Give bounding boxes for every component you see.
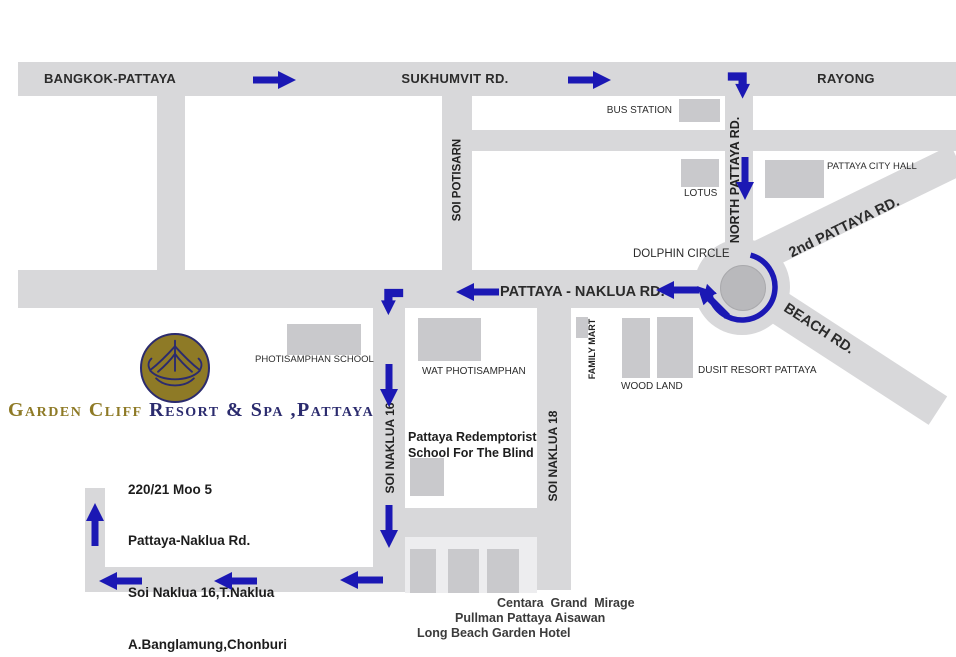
label-wat-photisamphan: WAT PHOTISAMPHAN — [422, 366, 526, 377]
label-pullman: Pullman Pattaya Aisawan — [455, 611, 605, 625]
resort-name-gold: Garden Cliff — [8, 399, 149, 421]
sukhumvit-arrow-east-icon — [568, 71, 612, 89]
blind-school-line1: Pattaya Redemptorist — [408, 430, 537, 444]
blind-school-line2: School For The Blind — [408, 446, 534, 460]
wat-photisamphan-building — [418, 318, 481, 361]
label-wood-land: WOOD LAND — [621, 381, 683, 392]
label-bangkok-pattaya: BANGKOK-PATTAYA — [30, 71, 190, 86]
label-bus-station: BUS STATION — [592, 105, 672, 116]
label-soi-naklua-18: SOI NAKLUA 18 — [546, 406, 560, 506]
lotus-building — [681, 159, 719, 187]
address-line: A.Banglamung,Chonburi — [128, 636, 287, 653]
road-bus-station-band — [472, 130, 956, 151]
north-pattaya-turn-arrow-icon — [727, 70, 750, 101]
boat-icon — [142, 335, 208, 401]
route-left-arrow-1-icon — [98, 572, 142, 590]
resort-address: 220/21 Moo 5 Pattaya-Naklua Rd. Soi Nakl… — [128, 446, 287, 657]
label-soi-potisarn: SOI POTISARN — [452, 133, 464, 228]
wood-land-building-2 — [657, 317, 693, 378]
soi16-down-arrow-2-icon — [380, 505, 398, 549]
address-line: Pattaya-Naklua Rd. — [128, 532, 287, 549]
label-blind-school: Pattaya RedemptoristSchool For The Blind — [408, 429, 537, 461]
garden-cliff-logo — [140, 333, 210, 403]
road-connector — [373, 508, 571, 537]
resort-name-navy: Resort & Spa ,Pattaya — [149, 399, 374, 421]
route-left-arrow-3-icon — [339, 571, 383, 589]
road-left-vertical — [157, 96, 185, 270]
label-soi-naklua-16: SOI NAKLUA 16 — [383, 398, 397, 498]
wood-land-building-1 — [622, 318, 650, 378]
label-centara: Centara Grand Mirage — [497, 596, 635, 610]
route-up-arrow-icon — [86, 502, 104, 546]
address-line: Soi Naklua 16,T.Naklua — [128, 584, 287, 601]
bus-station-building — [679, 99, 720, 122]
sukhumvit-arrow-west-icon — [253, 71, 297, 89]
north-pattaya-down-arrow-icon — [736, 157, 754, 201]
hotel-building-3 — [487, 549, 519, 593]
address-line: 220/21 Moo 5 — [128, 481, 287, 498]
blind-school-building — [410, 458, 444, 496]
resort-name: Garden Cliff Resort & Spa ,Pattaya — [8, 399, 340, 422]
label-lotus: LOTUS — [684, 188, 717, 199]
label-photisamphan-school: PHOTISAMPHAN SCHOOL — [255, 354, 374, 365]
label-family-mart: FAMILY MART — [587, 316, 597, 382]
naklua-left-arrow-mid-icon — [455, 283, 499, 301]
label-city-hall: PATTAYA CITY HALL — [827, 161, 917, 172]
hotel-building-2 — [448, 549, 479, 593]
hotel-building-1 — [410, 549, 436, 593]
soi16-down-arrow-1-icon — [380, 364, 398, 408]
label-sukhumvit: SUKHUMVIT RD. — [375, 71, 535, 86]
label-dusit-resort: DUSIT RESORT PATTAYA — [698, 365, 817, 376]
pattaya-map: BANGKOK-PATTAYA SUKHUMVIT RD. RAYONG SOI… — [0, 0, 956, 657]
photisamphan-school-building — [287, 324, 361, 355]
label-long-beach: Long Beach Garden Hotel — [417, 626, 571, 640]
label-pattaya-naklua: PATTAYA - NAKLUA RD. — [500, 284, 660, 300]
label-dolphin-circle: DOLPHIN CIRCLE — [633, 248, 730, 260]
soi16-turn-arrow-icon — [381, 286, 404, 318]
label-rayong: RAYONG — [786, 71, 906, 86]
city-hall-building — [765, 160, 824, 198]
route-left-arrow-2-icon — [213, 572, 257, 590]
